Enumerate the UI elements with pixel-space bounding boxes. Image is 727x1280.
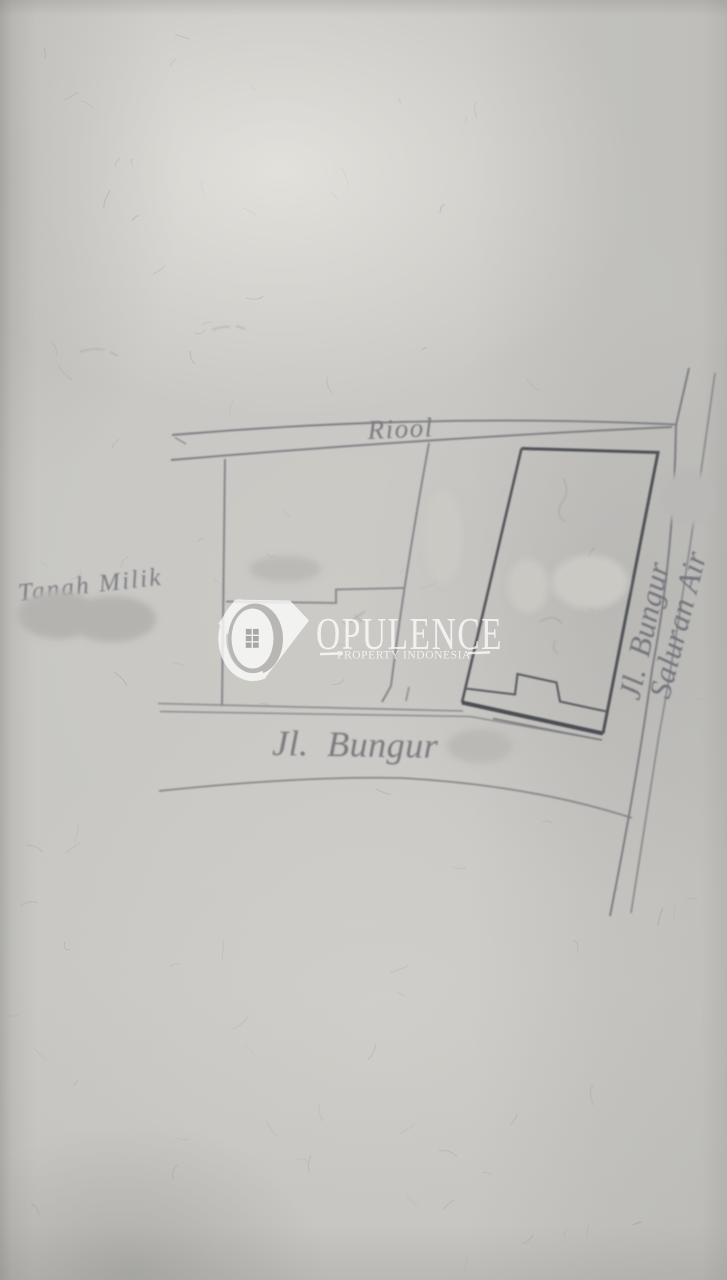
svg-text:Riool: Riool — [366, 412, 434, 445]
svg-text:Jl. Bungur: Jl. Bungur — [272, 723, 439, 766]
svg-text:PROPERTY INDONESIA: PROPERTY INDONESIA — [337, 650, 471, 662]
